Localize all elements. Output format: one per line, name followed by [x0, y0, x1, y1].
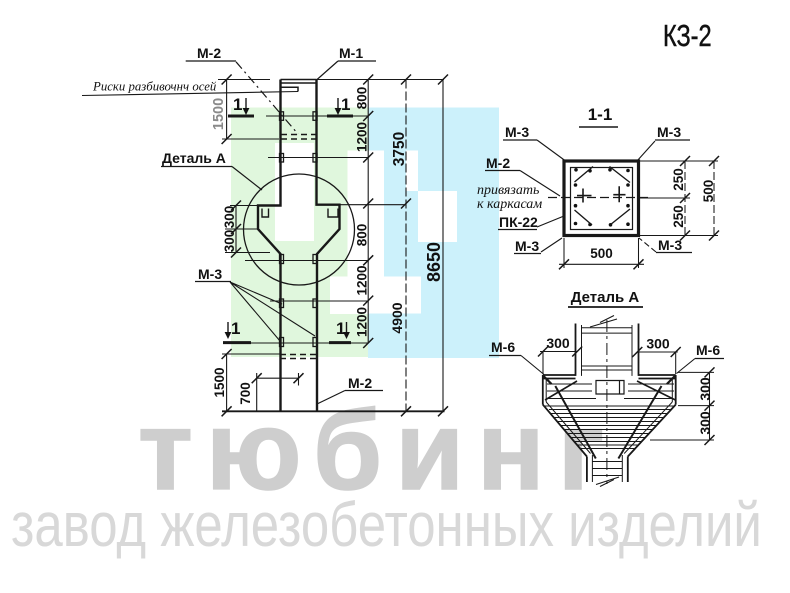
svg-text:М-3: М-3 [505, 124, 529, 140]
svg-text:М-3: М-3 [198, 266, 222, 282]
svg-text:4900: 4900 [389, 302, 405, 333]
svg-text:300: 300 [697, 411, 713, 435]
svg-text:3750: 3750 [391, 132, 408, 166]
svg-text:500: 500 [590, 246, 613, 261]
svg-text:к каркасам: к каркасам [477, 197, 542, 212]
svg-text:300: 300 [697, 377, 713, 401]
svg-text:700: 700 [238, 382, 253, 405]
svg-text:М-3: М-3 [658, 237, 682, 253]
svg-text:1500: 1500 [212, 367, 227, 397]
svg-text:250: 250 [671, 205, 686, 228]
svg-text:8650: 8650 [424, 242, 444, 282]
svg-text:300: 300 [646, 336, 670, 352]
svg-text:300: 300 [222, 230, 237, 253]
svg-text:800: 800 [355, 87, 370, 110]
svg-text:1200: 1200 [355, 265, 370, 295]
svg-text:1: 1 [336, 319, 345, 338]
svg-text:М-3: М-3 [515, 238, 539, 254]
svg-text:М-6: М-6 [491, 339, 515, 355]
svg-text:привязать: привязать [477, 183, 539, 198]
svg-text:завод железобетонных изделий: завод железобетонных изделий [11, 491, 762, 560]
svg-text:300: 300 [546, 335, 570, 351]
svg-text:500: 500 [701, 180, 716, 203]
svg-text:1: 1 [231, 319, 240, 338]
svg-text:М-6: М-6 [696, 342, 720, 358]
svg-text:М-2: М-2 [486, 155, 510, 171]
svg-text:300: 300 [222, 206, 237, 229]
svg-text:ПК-22: ПК-22 [499, 214, 538, 230]
svg-text:М-3: М-3 [657, 124, 681, 140]
svg-text:800: 800 [355, 224, 370, 247]
svg-text:1200: 1200 [355, 122, 370, 152]
svg-text:250: 250 [671, 168, 686, 191]
svg-text:М-2: М-2 [348, 375, 372, 391]
svg-text:Деталь А: Деталь А [571, 289, 640, 306]
svg-text:Деталь А: Деталь А [162, 150, 226, 166]
svg-text:М-2: М-2 [197, 45, 221, 61]
svg-text:1200: 1200 [355, 307, 370, 337]
svg-text:М-1: М-1 [339, 45, 363, 61]
svg-text:1: 1 [341, 95, 350, 114]
svg-text:1-1: 1-1 [588, 105, 613, 124]
svg-text:1: 1 [233, 95, 242, 114]
svg-text:1500: 1500 [211, 98, 227, 130]
svg-text:Риски разбивочнч осей: Риски разбивочнч осей [92, 80, 217, 94]
svg-text:КЗ-2: КЗ-2 [663, 18, 712, 53]
